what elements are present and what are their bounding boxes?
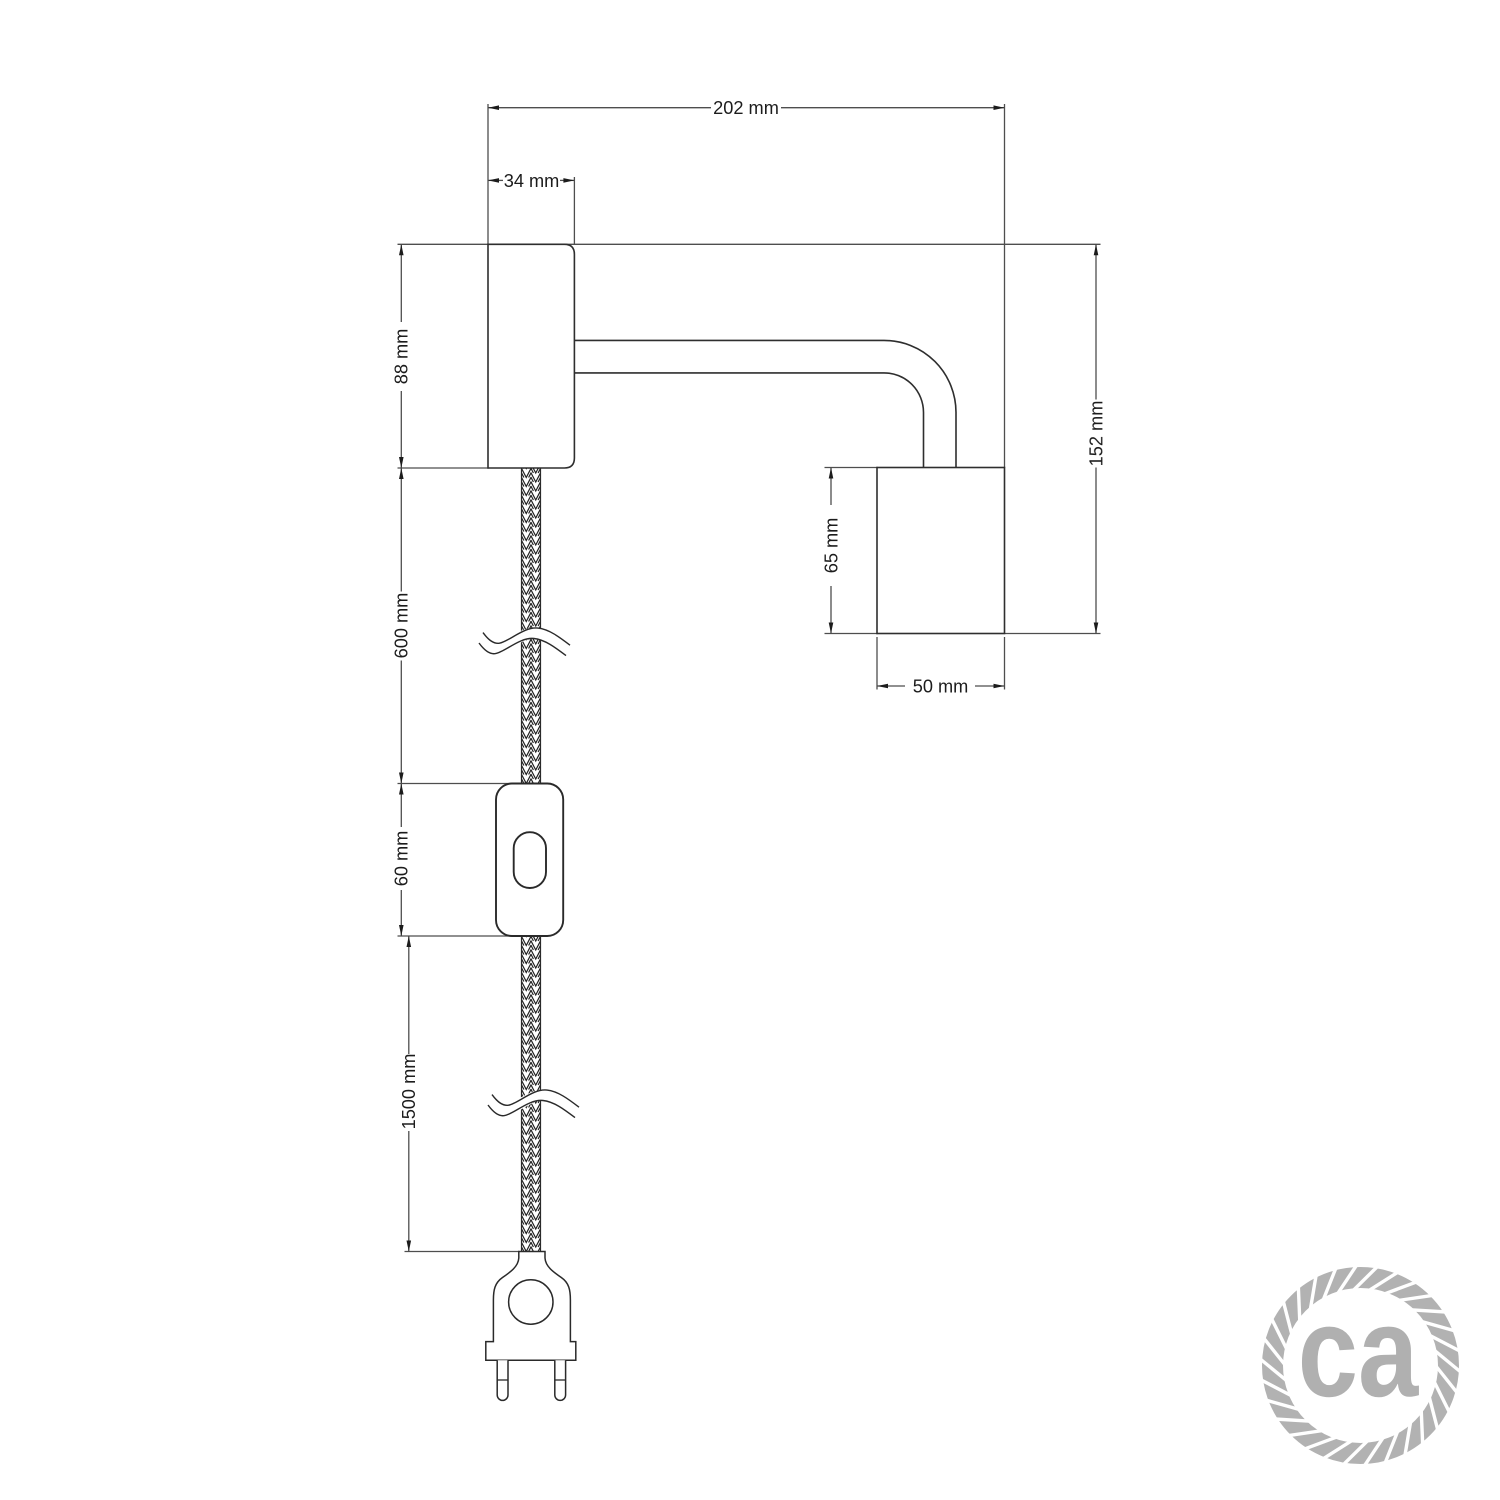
svg-text:65 mm: 65 mm xyxy=(821,518,841,574)
svg-text:202 mm: 202 mm xyxy=(713,98,779,118)
svg-text:34 mm: 34 mm xyxy=(504,171,560,191)
svg-text:60 mm: 60 mm xyxy=(392,831,412,887)
svg-text:88 mm: 88 mm xyxy=(392,329,412,385)
svg-text:152 mm: 152 mm xyxy=(1086,401,1106,467)
svg-text:1500 mm: 1500 mm xyxy=(399,1054,419,1130)
svg-text:ca: ca xyxy=(1298,1280,1419,1424)
svg-text:600 mm: 600 mm xyxy=(392,593,412,659)
svg-text:50 mm: 50 mm xyxy=(913,676,969,696)
